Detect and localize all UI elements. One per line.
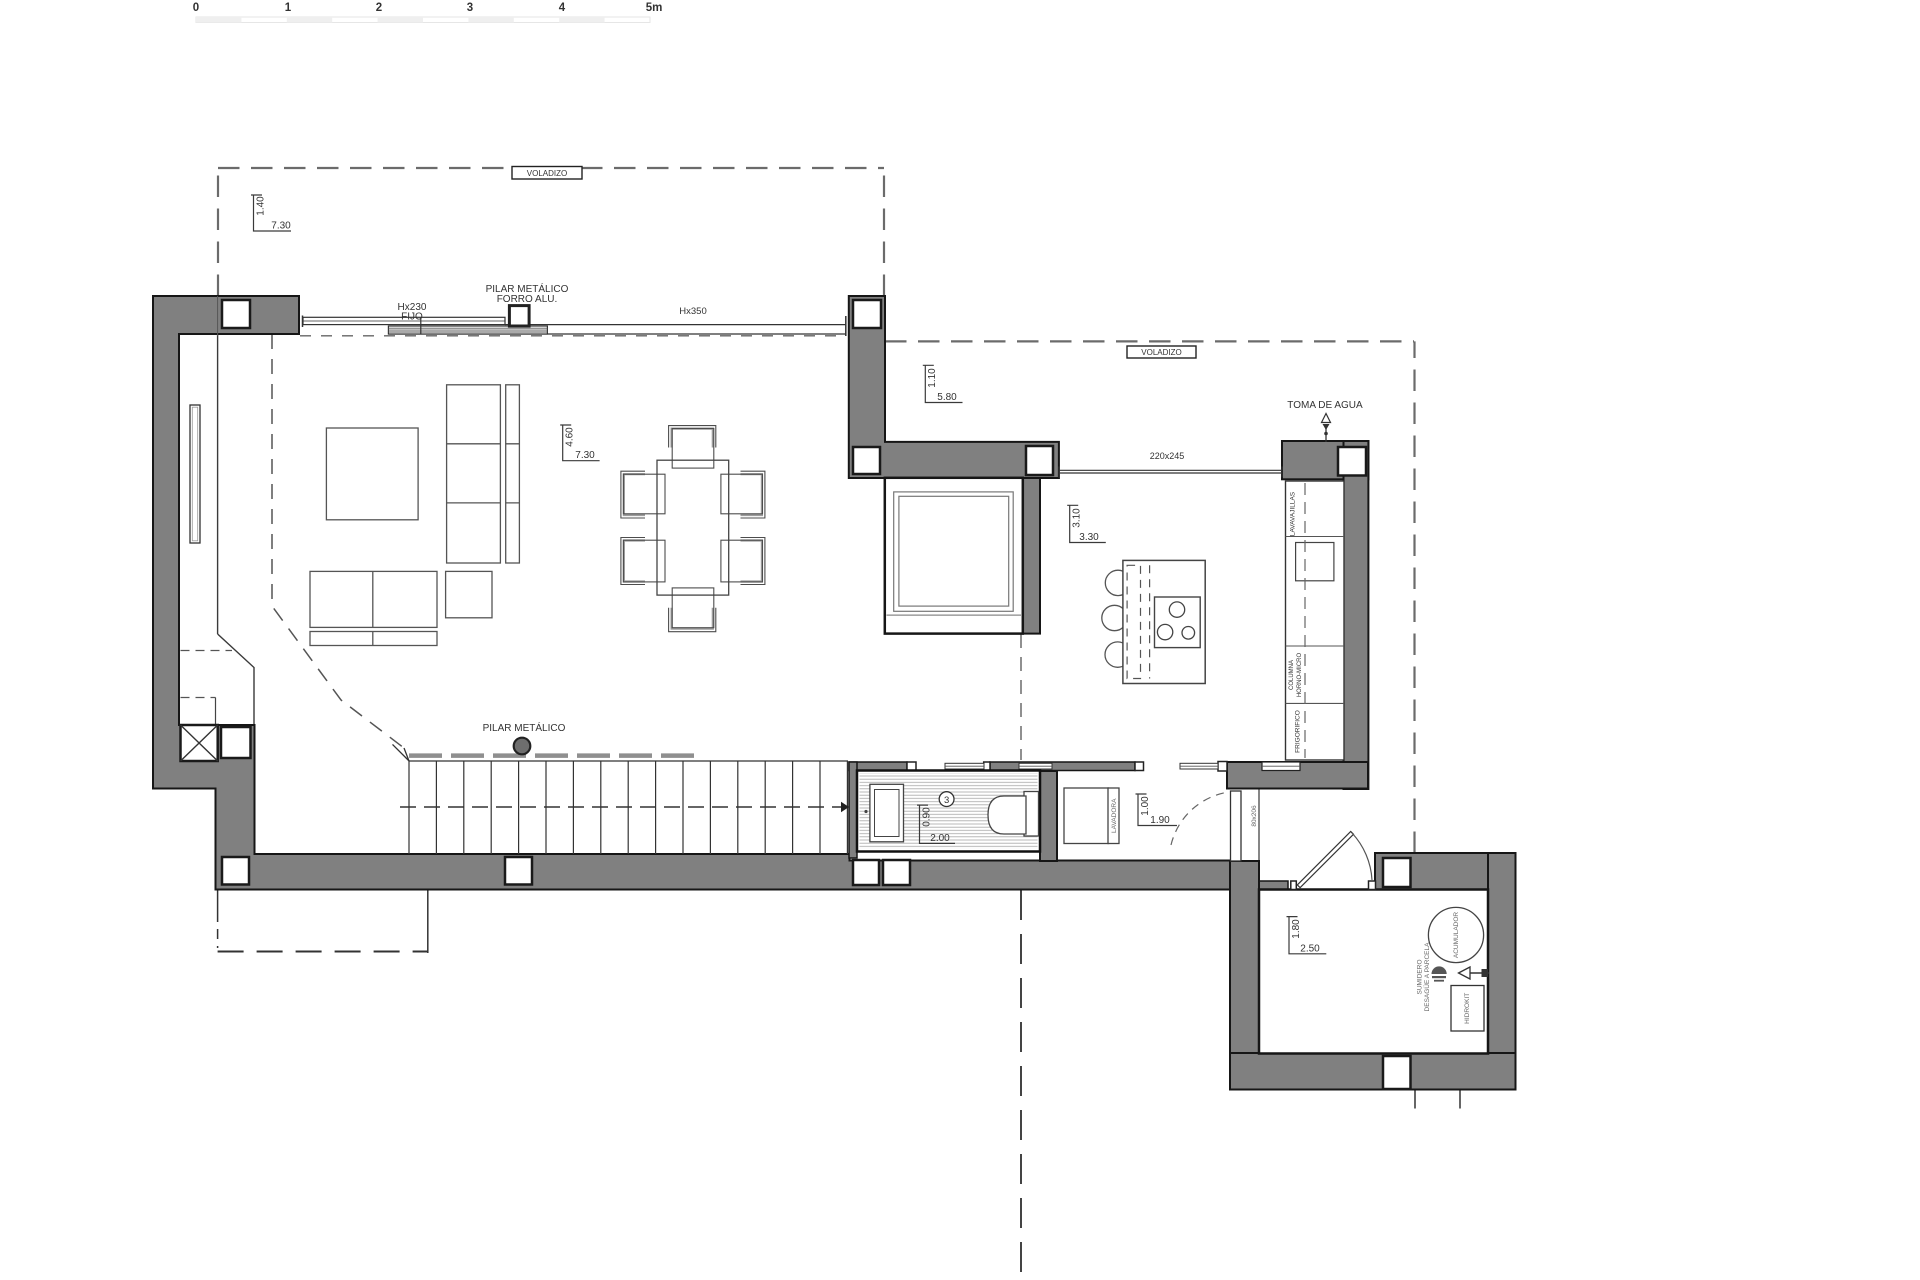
- svg-text:2.50: 2.50: [1300, 943, 1320, 954]
- svg-text:1.80: 1.80: [1291, 919, 1302, 939]
- svg-text:HORNO-MICRO: HORNO-MICRO: [1297, 653, 1303, 698]
- svg-text:7.30: 7.30: [575, 450, 595, 461]
- svg-text:4: 4: [559, 2, 566, 14]
- svg-text:0: 0: [193, 2, 199, 14]
- svg-text:80x206: 80x206: [1251, 805, 1258, 827]
- svg-text:3.10: 3.10: [1072, 508, 1083, 528]
- svg-text:3: 3: [467, 2, 473, 14]
- svg-text:2.00: 2.00: [930, 833, 950, 844]
- svg-text:FIJO: FIJO: [401, 312, 423, 323]
- svg-text:COLUMNA: COLUMNA: [1289, 660, 1295, 690]
- svg-text:5.80: 5.80: [937, 392, 957, 403]
- svg-text:1.10: 1.10: [927, 368, 938, 388]
- svg-text:VOLADIZO: VOLADIZO: [1141, 348, 1181, 357]
- svg-text:LAVAVAJILLAS: LAVAVAJILLAS: [1290, 491, 1297, 536]
- svg-text:5m: 5m: [646, 2, 663, 14]
- svg-text:ACUMULADOR: ACUMULADOR: [1453, 912, 1460, 959]
- svg-text:DESAGÜE A PARCELA: DESAGÜE A PARCELA: [1423, 942, 1431, 1012]
- svg-text:1.90: 1.90: [1150, 815, 1170, 826]
- svg-text:7.30: 7.30: [271, 221, 291, 232]
- svg-text:TOMA DE AGUA: TOMA DE AGUA: [1287, 400, 1363, 411]
- svg-text:SUMIDERO: SUMIDERO: [1416, 959, 1423, 994]
- svg-text:PILAR METÁLICO: PILAR METÁLICO: [483, 721, 566, 734]
- svg-text:0.90: 0.90: [922, 807, 933, 827]
- svg-text:HIDROKIT: HIDROKIT: [1464, 993, 1471, 1024]
- svg-text:2: 2: [376, 2, 382, 14]
- svg-text:Hx350: Hx350: [679, 306, 706, 317]
- svg-text:220x245: 220x245: [1150, 451, 1185, 461]
- svg-text:FORRO ALU.: FORRO ALU.: [497, 294, 558, 305]
- svg-text:4.60: 4.60: [565, 427, 576, 447]
- svg-text:VOLADIZO: VOLADIZO: [527, 169, 567, 178]
- svg-text:3.30: 3.30: [1079, 532, 1099, 543]
- svg-text:1: 1: [285, 2, 292, 14]
- svg-text:1.00: 1.00: [1140, 796, 1151, 816]
- svg-text:FRIGORIFICO: FRIGORIFICO: [1295, 710, 1302, 753]
- svg-text:1.40: 1.40: [256, 196, 267, 216]
- svg-text:3: 3: [944, 795, 949, 806]
- svg-text:LAVADORA: LAVADORA: [1111, 798, 1118, 833]
